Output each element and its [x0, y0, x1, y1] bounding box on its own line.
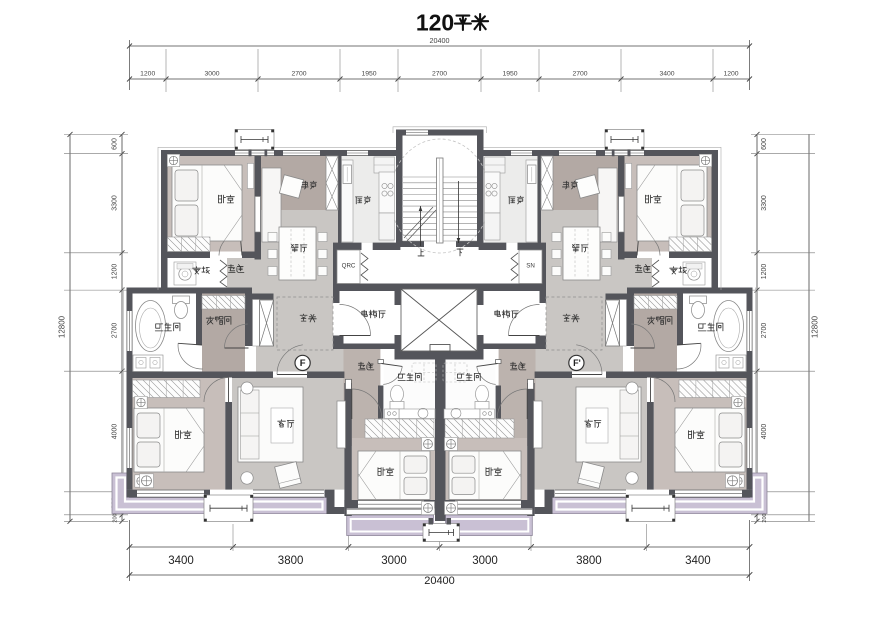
- svg-text:F': F': [573, 358, 581, 368]
- svg-text:12800: 12800: [811, 315, 820, 338]
- svg-text:1200: 1200: [112, 264, 119, 280]
- svg-text:120: 120: [416, 10, 454, 36]
- svg-text:2700: 2700: [112, 323, 119, 339]
- svg-text:1200: 1200: [140, 71, 155, 78]
- svg-text:600: 600: [112, 138, 119, 150]
- svg-text:1200: 1200: [761, 264, 768, 280]
- svg-text:2700: 2700: [761, 323, 768, 339]
- svg-text:12800: 12800: [58, 315, 67, 338]
- svg-text:3800: 3800: [576, 555, 602, 567]
- svg-text:SN: SN: [526, 263, 535, 270]
- svg-text:1950: 1950: [502, 71, 517, 78]
- svg-text:20400: 20400: [430, 36, 450, 45]
- svg-text:1950: 1950: [361, 71, 376, 78]
- svg-text:2700: 2700: [572, 71, 587, 78]
- svg-text:3400: 3400: [659, 71, 674, 78]
- svg-text:600: 600: [761, 138, 768, 150]
- svg-text:2700: 2700: [291, 71, 306, 78]
- svg-text:200: 200: [762, 513, 768, 522]
- svg-text:4000: 4000: [761, 424, 768, 440]
- svg-text:3300: 3300: [761, 195, 768, 211]
- svg-text:2700: 2700: [432, 71, 447, 78]
- svg-text:4000: 4000: [112, 424, 119, 440]
- svg-text:3000: 3000: [204, 71, 219, 78]
- svg-text:20400: 20400: [424, 575, 455, 587]
- svg-text:1200: 1200: [723, 71, 738, 78]
- svg-text:3300: 3300: [112, 195, 119, 211]
- svg-text:200: 200: [113, 513, 119, 522]
- svg-text:3000: 3000: [472, 555, 498, 567]
- svg-text:F: F: [300, 358, 306, 369]
- svg-text:3000: 3000: [381, 555, 407, 567]
- svg-text:QRC: QRC: [342, 263, 356, 270]
- svg-text:3400: 3400: [685, 555, 711, 567]
- svg-text:3400: 3400: [168, 555, 194, 567]
- svg-text:3800: 3800: [278, 555, 304, 567]
